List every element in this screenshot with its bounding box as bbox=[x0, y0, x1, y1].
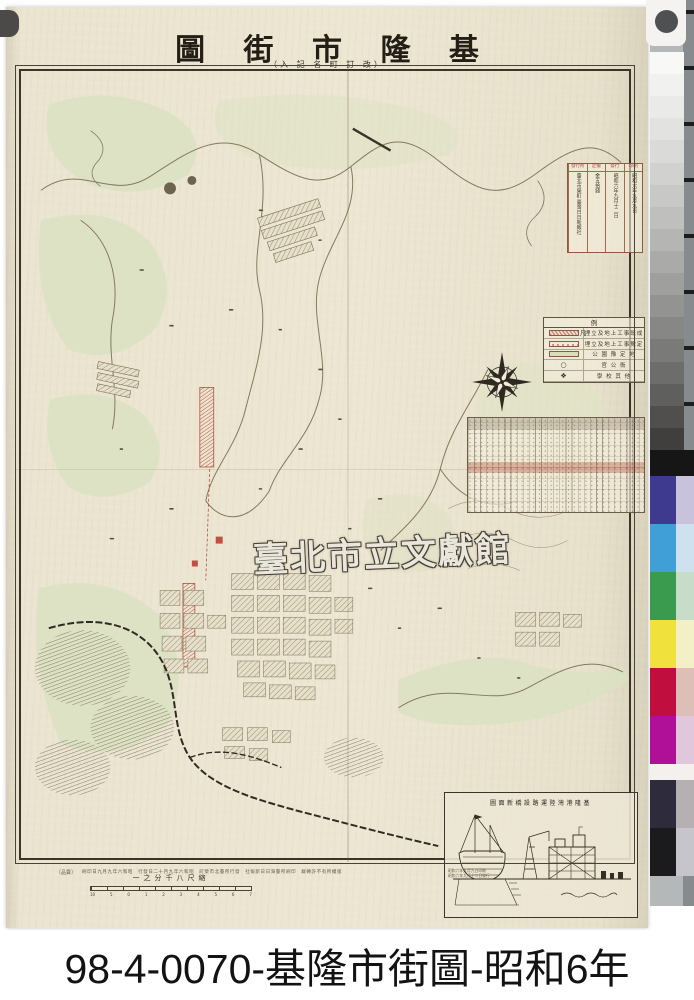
color-patch-row bbox=[650, 828, 694, 876]
legend-label: 埋立及地上工事豫定 bbox=[584, 340, 644, 348]
color-patch-main bbox=[650, 620, 676, 668]
grayscale-step bbox=[650, 140, 684, 162]
colophon-value: 臺北市榮町 臺灣日日新報社 bbox=[575, 173, 581, 251]
grayscale-step bbox=[650, 229, 684, 251]
color-patch-row bbox=[650, 476, 694, 524]
grayscale-step bbox=[650, 317, 684, 339]
color-patch-main bbox=[650, 716, 676, 764]
color-patch-main bbox=[650, 780, 676, 828]
legend-label: 埋立及地上工事既成 bbox=[584, 329, 644, 337]
city-blocks-station bbox=[223, 728, 291, 761]
color-patch-tint bbox=[676, 572, 694, 620]
grayscale-step bbox=[650, 339, 684, 361]
color-patch-main bbox=[650, 668, 676, 716]
pier-warehouses bbox=[257, 199, 332, 264]
legend-swatch-cell bbox=[544, 328, 584, 338]
color-patch-tint bbox=[676, 716, 694, 764]
fold-crease-horizontal bbox=[16, 469, 638, 470]
legend-swatch-cell: ○ bbox=[544, 360, 584, 370]
legend-label: 官 公 衙 bbox=[584, 361, 644, 369]
grayscale-step bbox=[650, 295, 684, 317]
colophon-cell: 發行所 臺北市榮町 臺灣日日新報社 bbox=[568, 164, 587, 252]
grayscale-step bbox=[650, 163, 684, 185]
color-patch-tint bbox=[676, 828, 694, 876]
legend-row: 公 園 豫 定 地 bbox=[544, 350, 644, 361]
compass-rose-icon bbox=[469, 349, 535, 415]
color-patch-row bbox=[650, 780, 694, 828]
grayscale-step bbox=[650, 362, 684, 384]
color-patch-tint bbox=[676, 764, 694, 780]
corner-registration-mark bbox=[0, 10, 19, 37]
color-patch-row bbox=[650, 668, 694, 716]
legend-swatch-icon: ○ bbox=[560, 362, 566, 369]
scale-tick-number: 4 bbox=[197, 892, 200, 897]
grayscale-step bbox=[650, 251, 684, 273]
colophon-cell: 印刷 昭和六年九月九日 bbox=[624, 164, 643, 252]
color-patch-row bbox=[650, 716, 694, 764]
inset-artwork bbox=[445, 807, 637, 917]
scale-tick-number: 6 bbox=[232, 892, 235, 897]
town-name-table bbox=[467, 417, 645, 513]
color-patch-main bbox=[650, 476, 676, 524]
archive-watermark: 臺北市立文獻館 bbox=[252, 522, 484, 583]
color-patch-main bbox=[650, 572, 676, 620]
scale-tick-number: 5 bbox=[215, 892, 218, 897]
colophon-table: 印刷 昭和六年九月九日 發行 昭和六年九月十二日 定價 金五拾錢 發行所 臺北市… bbox=[567, 163, 643, 253]
grayscale-step bbox=[650, 118, 684, 140]
legend-swatch-icon: ❖ bbox=[560, 373, 566, 380]
colophon-header: 發行所 bbox=[569, 164, 587, 172]
imprint-right-line: 昭和六年九月十二日發行 bbox=[448, 874, 490, 879]
calibration-separator bbox=[650, 450, 694, 476]
legend-swatch-cell bbox=[544, 339, 584, 349]
color-patch-tint bbox=[676, 668, 694, 716]
table-text-texture bbox=[468, 418, 644, 512]
color-patch-row bbox=[650, 524, 694, 572]
colophon-header: 印刷 bbox=[625, 164, 643, 172]
legend-swatch-icon bbox=[549, 351, 579, 357]
color-patch-tint bbox=[676, 620, 694, 668]
scale-tick-number: 1 bbox=[145, 892, 148, 897]
scale-tick-number: 10 bbox=[90, 892, 95, 897]
color-patch-tint bbox=[676, 524, 694, 572]
inset-title: 圖面新橋設路運陸灣港隆基 bbox=[445, 798, 637, 807]
imprint-strip: 〔品賣〕 刷印日九月九年六和昭 行發日二十月九年六和昭 町榮市北臺所行發 社報新… bbox=[56, 869, 601, 887]
color-patch-row bbox=[650, 572, 694, 620]
legend-label: 學 校 其 他 bbox=[584, 372, 644, 380]
colophon-cell: 定價 金五拾錢 bbox=[587, 164, 606, 252]
map-sheet: 圖 街 市 隆 基 （入 記 名 町 訂 改） bbox=[6, 7, 648, 928]
grayscale-step bbox=[650, 207, 684, 229]
imprint-right-block: 昭和六年九月九日印刷 昭和六年九月十二日發行 bbox=[448, 869, 490, 879]
map-frame: 印刷 昭和六年九月九日 發行 昭和六年九月十二日 定價 金五拾錢 發行所 臺北市… bbox=[19, 69, 631, 860]
colophon-value: 昭和六年九月九日 bbox=[630, 173, 636, 251]
grayscale-step-wedge bbox=[650, 52, 684, 450]
grayscale-step bbox=[650, 384, 684, 406]
scale-tick-number: 5 bbox=[110, 892, 113, 897]
color-calibration-chart bbox=[650, 476, 694, 876]
archive-caption: 98-4-0070-基隆市街圖-昭和6年 bbox=[64, 935, 629, 995]
legend-title: 例 凡 bbox=[544, 318, 644, 328]
legend-box: 例 凡 埋立及地上工事既成 埋立及地上工事豫定 bbox=[543, 317, 645, 383]
color-patch-main bbox=[650, 828, 676, 876]
grayscale-step bbox=[650, 74, 684, 96]
grayscale-step bbox=[650, 185, 684, 207]
colophon-header: 發行 bbox=[606, 164, 624, 172]
legend-label: 公 園 豫 定 地 bbox=[584, 350, 644, 358]
grayscale-step bbox=[650, 406, 684, 428]
legend-swatch-cell bbox=[544, 350, 584, 360]
city-blocks-east bbox=[516, 612, 582, 646]
colophon-value: 昭和六年九月十二日 bbox=[612, 173, 618, 251]
grayscale-step bbox=[650, 428, 684, 450]
color-patch-tint bbox=[676, 476, 694, 524]
legend-swatch-cell: ❖ bbox=[544, 371, 584, 381]
imprint-text-line: 刷印日九月九年六和昭 行發日二十月九年六和昭 町榮市北臺所行發 社報新日日灣臺所… bbox=[82, 869, 442, 875]
colophon-header: 定價 bbox=[588, 164, 606, 172]
color-patch-main bbox=[650, 764, 676, 780]
scale-tick-number: 3 bbox=[180, 892, 183, 897]
scale-tick-number: 2 bbox=[162, 892, 165, 897]
scale-ticks: 10 5 0 1 2 3 4 5 6 7 bbox=[90, 892, 252, 897]
legend-row: 埋立及地上工事豫定 bbox=[544, 339, 644, 350]
registration-dot-icon bbox=[655, 10, 678, 33]
grayscale-step bbox=[650, 273, 684, 295]
color-patch-main bbox=[650, 524, 676, 572]
legend-row: ○ 官 公 衙 bbox=[544, 360, 644, 371]
imprint-left-note: 〔品賣〕 bbox=[56, 869, 76, 876]
scale-tick-number: 0 bbox=[127, 892, 130, 897]
legend-swatch-icon bbox=[549, 330, 579, 336]
color-patch-tint bbox=[676, 780, 694, 828]
caption-band: 98-4-0070-基隆市街圖-昭和6年 bbox=[0, 930, 694, 1000]
grayscale-step bbox=[650, 52, 684, 74]
legend-row: ❖ 學 校 其 他 bbox=[544, 371, 644, 382]
colophon-cell: 發行 昭和六年九月十二日 bbox=[605, 164, 624, 252]
color-patch-row bbox=[650, 620, 694, 668]
color-patch-row bbox=[650, 764, 694, 780]
legend-swatch-icon bbox=[549, 341, 579, 347]
scale-tick-number: 7 bbox=[249, 892, 252, 897]
city-blocks-main bbox=[232, 573, 353, 699]
west-piers bbox=[93, 362, 142, 399]
grayscale-step bbox=[650, 96, 684, 118]
legend-row: 埋立及地上工事既成 bbox=[544, 328, 644, 339]
fold-crease-vertical bbox=[347, 62, 349, 862]
colophon-value: 金五拾錢 bbox=[593, 173, 599, 251]
inset-harbor-diagram: 圖面新橋設路運陸灣港隆基 bbox=[444, 792, 638, 918]
